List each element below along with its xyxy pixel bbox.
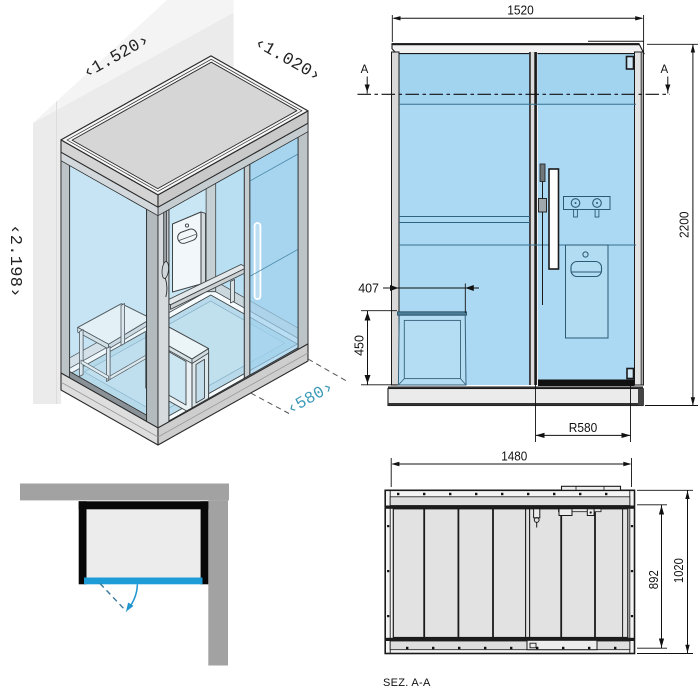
svg-text:A: A <box>660 64 668 76</box>
svg-text:892: 892 <box>646 570 661 589</box>
svg-text:1520: 1520 <box>507 2 534 17</box>
svg-text:407: 407 <box>358 281 379 296</box>
svg-text:A: A <box>361 64 369 76</box>
svg-text:‹2.198›: ‹2.198› <box>5 224 24 298</box>
svg-text:R580: R580 <box>569 420 598 435</box>
svg-text:2200: 2200 <box>677 211 692 238</box>
svg-text:1020: 1020 <box>671 558 686 583</box>
svg-text:1480: 1480 <box>501 449 527 464</box>
svg-text:SEZ. A-A: SEZ. A-A <box>383 677 431 689</box>
svg-text:450: 450 <box>351 335 366 356</box>
